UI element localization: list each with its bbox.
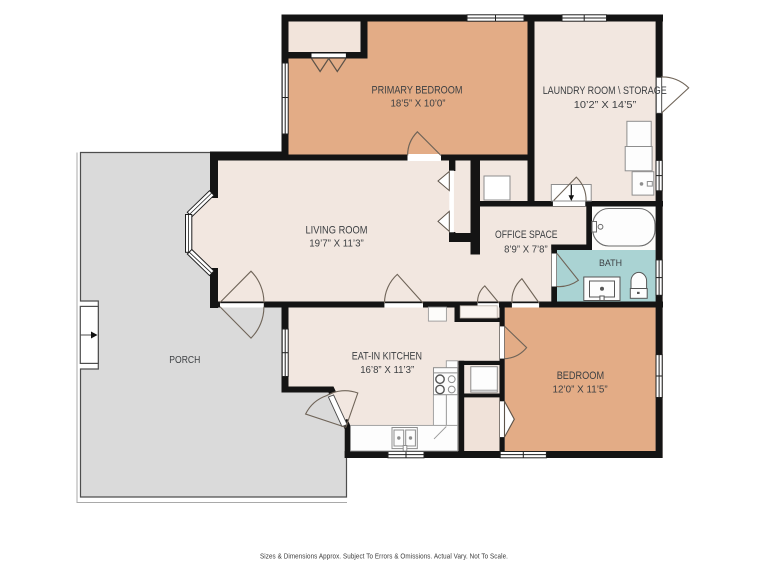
- svg-text:12’0” X 11’5”: 12’0” X 11’5”: [553, 383, 609, 395]
- svg-text:PORCH: PORCH: [169, 355, 200, 366]
- svg-text:16’8” X 11’3”: 16’8” X 11’3”: [360, 364, 414, 376]
- svg-text:LIVING ROOM: LIVING ROOM: [306, 225, 368, 237]
- svg-text:LAUNDRY ROOM \ STORAGE: LAUNDRY ROOM \ STORAGE: [543, 85, 667, 97]
- svg-text:8’9” X 7’8”: 8’9” X 7’8”: [504, 243, 548, 255]
- svg-text:BATH: BATH: [599, 258, 622, 269]
- svg-text:BEDROOM: BEDROOM: [557, 370, 604, 382]
- svg-text:19’7” X 11’3”: 19’7” X 11’3”: [309, 237, 364, 249]
- svg-text:Sizes & Dimensions Approx. Sub: Sizes & Dimensions Approx. Subject To Er…: [260, 554, 508, 561]
- svg-text:10’2” X 14’5”: 10’2” X 14’5”: [574, 99, 637, 111]
- svg-text:18’5” X 10’0”: 18’5” X 10’0”: [391, 98, 446, 110]
- svg-text:EAT-IN KITCHEN: EAT-IN KITCHEN: [352, 350, 422, 362]
- svg-text:PRIMARY BEDROOM: PRIMARY BEDROOM: [372, 84, 463, 96]
- svg-text:OFFICE SPACE: OFFICE SPACE: [495, 229, 558, 241]
